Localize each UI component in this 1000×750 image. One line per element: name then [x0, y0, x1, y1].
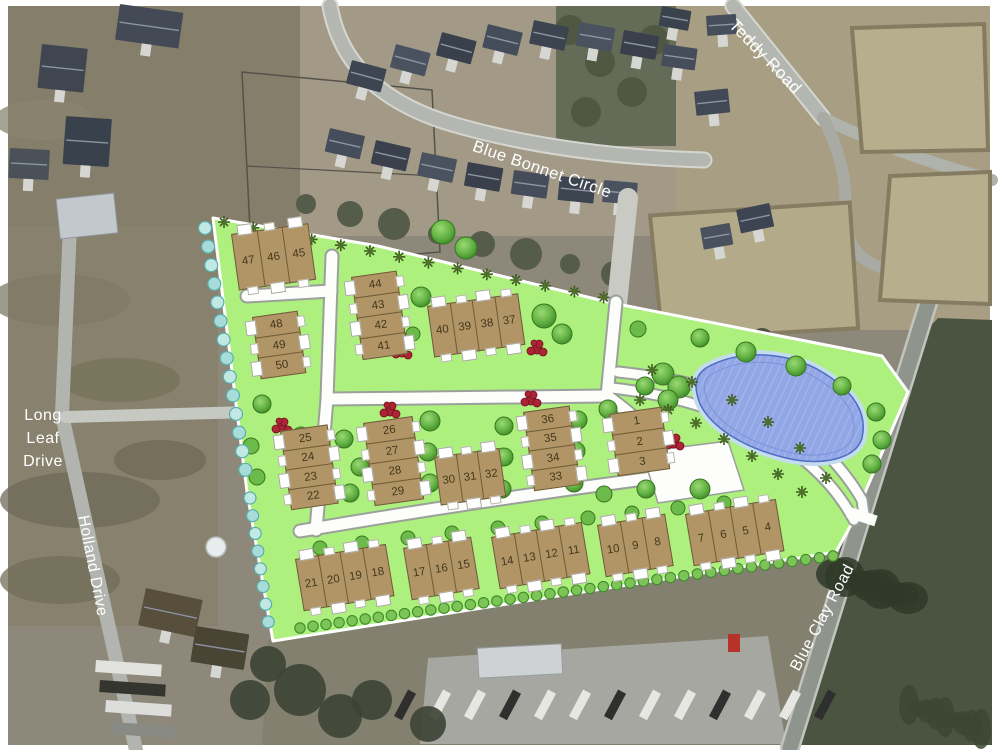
aerial-map-canvas	[0, 0, 1000, 750]
site-plan-aerial-image: 4746454443424148495040393837252423222627…	[0, 0, 1000, 750]
